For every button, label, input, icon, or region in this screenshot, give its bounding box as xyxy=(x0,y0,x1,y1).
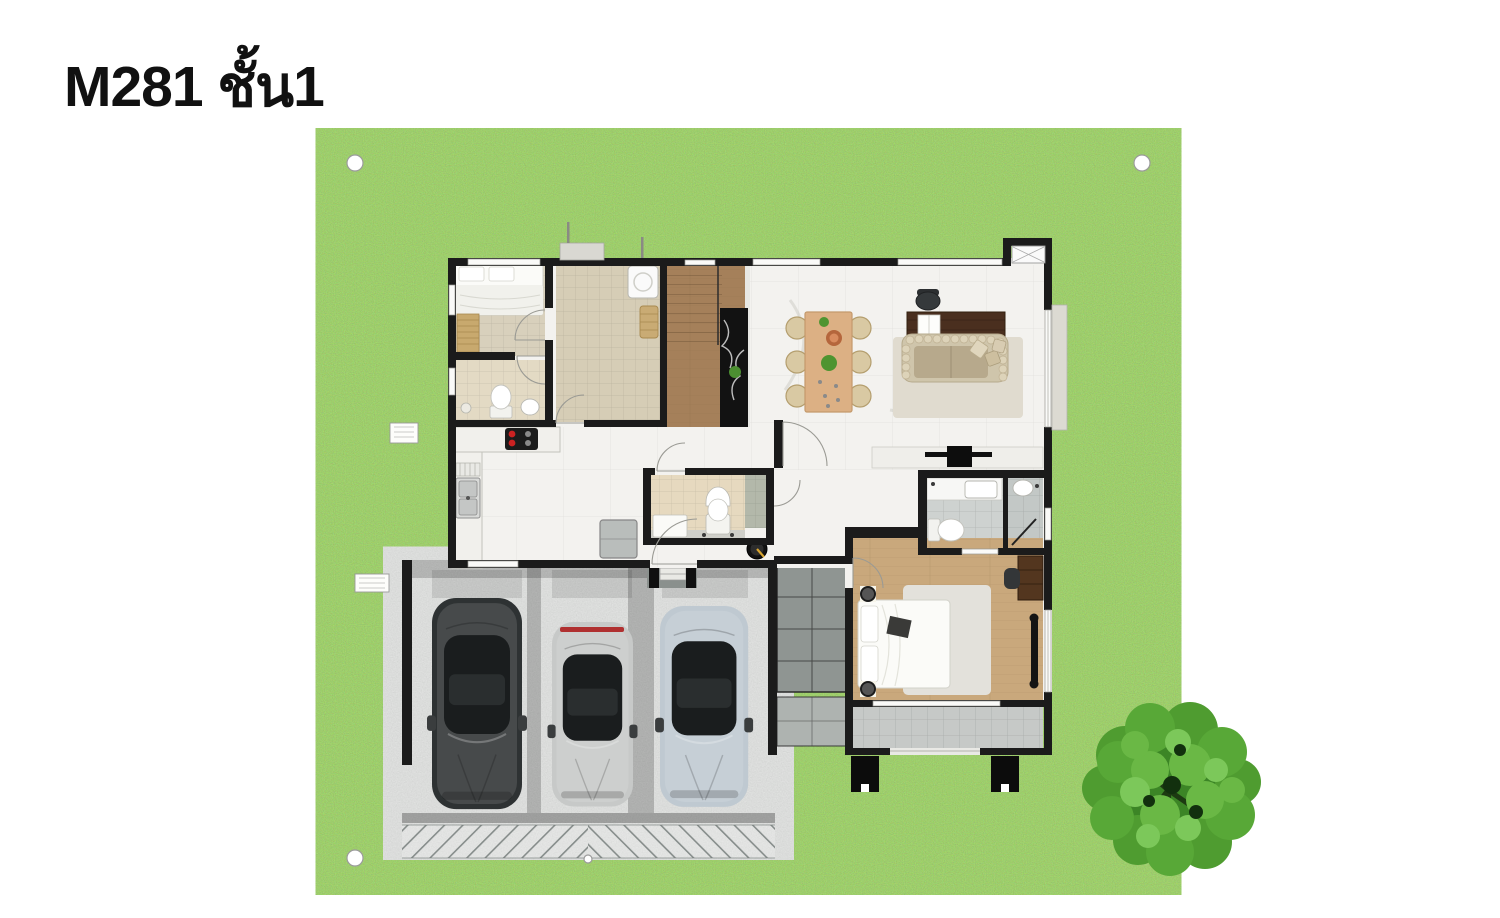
potted-plant xyxy=(729,366,741,378)
drain-pipe xyxy=(641,237,644,258)
decor-bowl xyxy=(826,330,842,346)
slat-bench xyxy=(457,314,479,352)
toilet xyxy=(706,487,730,534)
laundry-basket xyxy=(640,306,658,338)
tail-light xyxy=(560,627,624,632)
washing-machine xyxy=(628,266,658,298)
dining-set xyxy=(786,312,871,412)
television xyxy=(947,446,972,467)
bedroom-chair xyxy=(1004,568,1020,589)
stool xyxy=(461,403,471,413)
drain-pipe xyxy=(567,222,570,243)
table-plant xyxy=(821,355,837,371)
exterior-ledge xyxy=(560,243,604,260)
washbasin xyxy=(521,399,539,415)
stove xyxy=(505,428,538,450)
floor-plan-canvas xyxy=(0,0,1500,918)
open-book xyxy=(918,315,940,335)
corner-sofa xyxy=(902,334,1008,382)
suv-black xyxy=(427,598,527,809)
shower-partition xyxy=(1003,478,1008,549)
double-bed xyxy=(858,600,950,688)
refrigerator xyxy=(600,520,637,558)
vanity-counter xyxy=(653,515,687,537)
sedan-silver-blue xyxy=(655,606,753,807)
table-plant xyxy=(819,317,829,327)
toilet xyxy=(490,385,512,418)
terrace xyxy=(853,707,1043,748)
washbasin xyxy=(1013,480,1033,496)
wardrobe xyxy=(1018,556,1043,600)
living-area xyxy=(893,334,1023,418)
dish-rack xyxy=(456,463,480,476)
sports-car-silver xyxy=(548,622,638,807)
toilet xyxy=(928,519,964,541)
shoe-cabinet xyxy=(745,473,766,528)
kitchen-sink xyxy=(456,478,480,518)
single-bed xyxy=(455,263,543,315)
walkway xyxy=(777,565,847,746)
terrace-step xyxy=(890,748,980,755)
tv-console xyxy=(872,446,1043,468)
vanity-sink xyxy=(965,481,997,498)
marble-feature-wall xyxy=(720,308,748,427)
exterior-ledge xyxy=(1052,305,1067,430)
office-chair xyxy=(916,289,940,310)
staircase xyxy=(667,262,750,427)
driveway xyxy=(402,825,775,858)
